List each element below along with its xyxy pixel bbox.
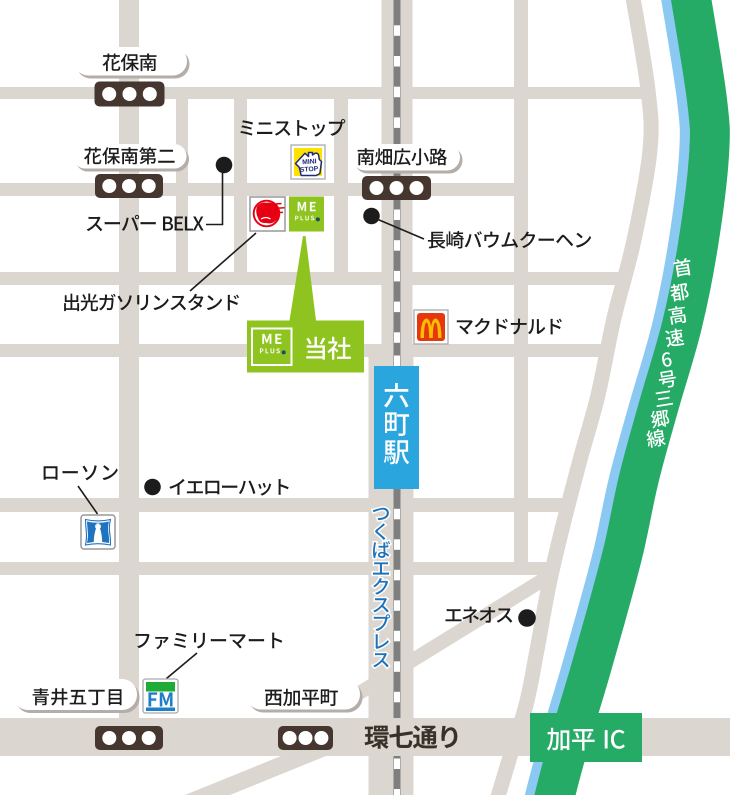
svg-text:STOP: STOP xyxy=(300,166,319,174)
